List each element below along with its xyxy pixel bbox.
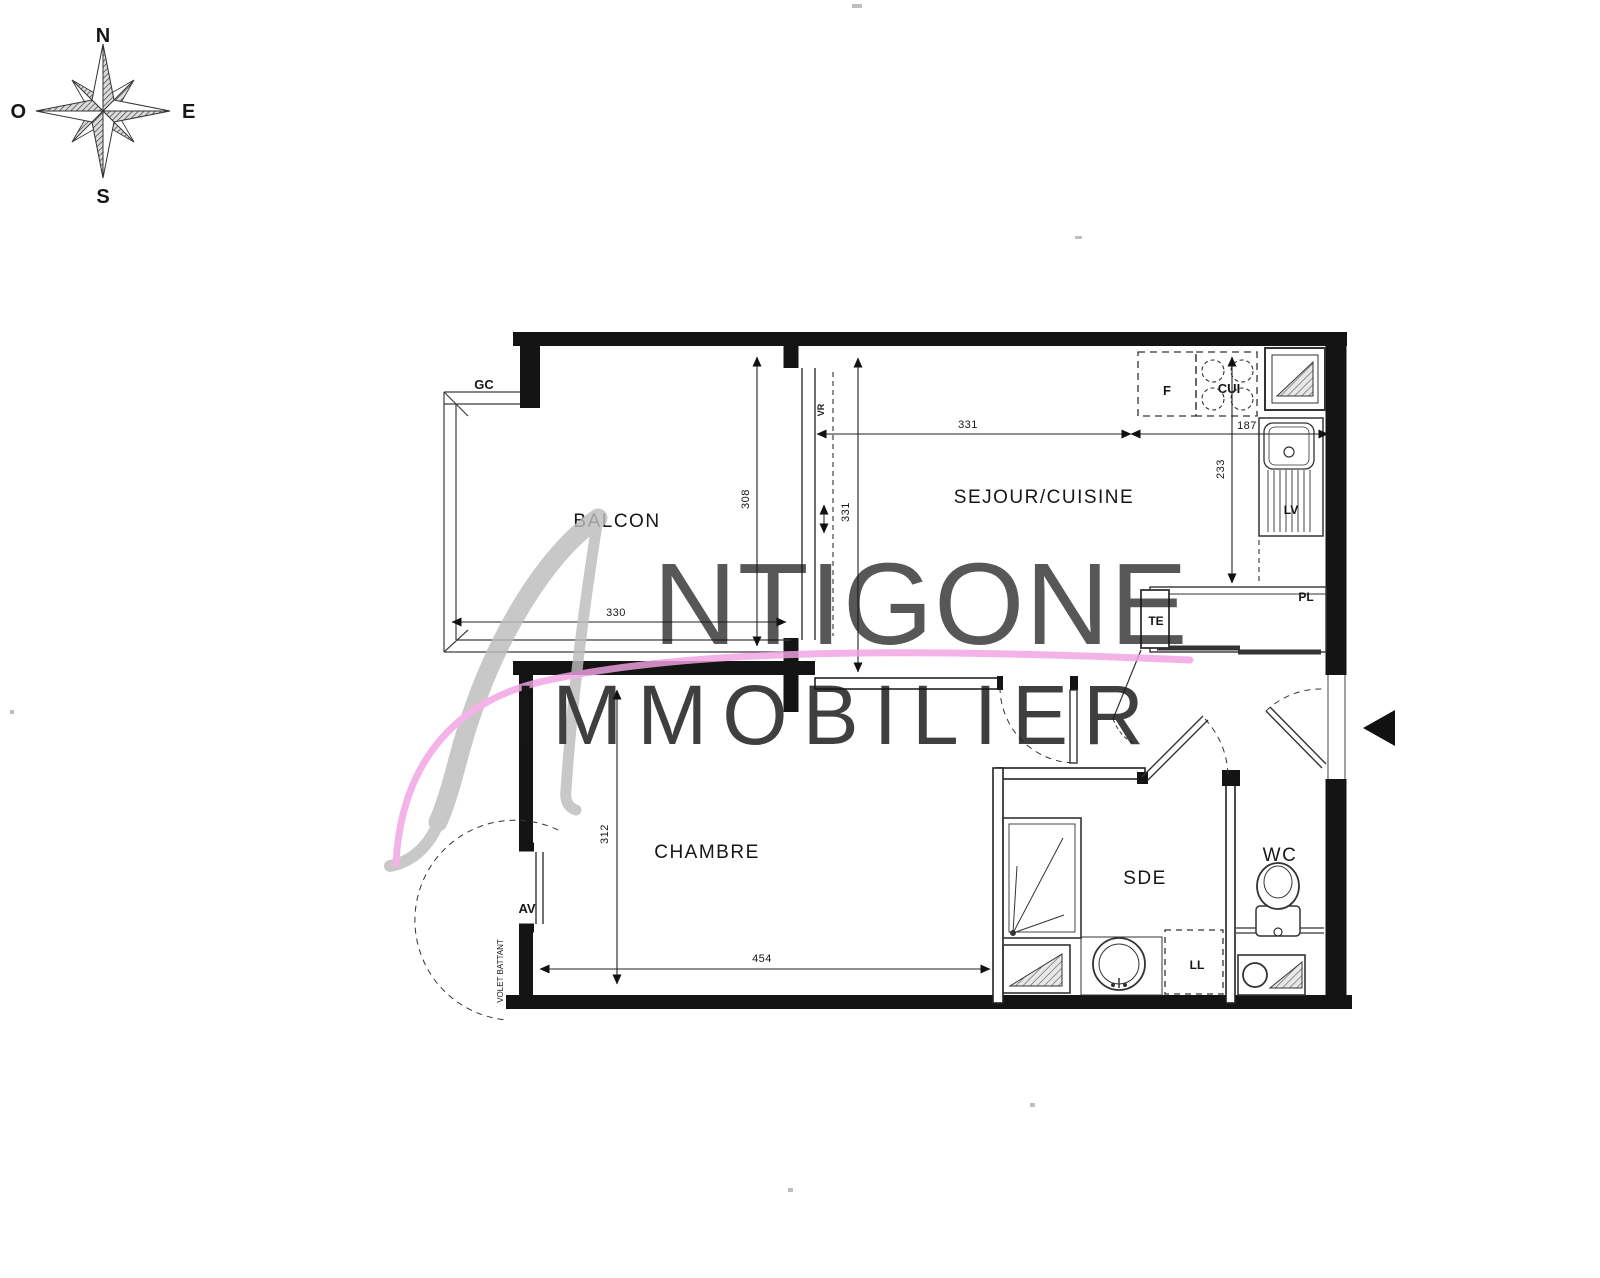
entrance-threshold: [1328, 675, 1345, 779]
dim-kitchen-width: 187: [1237, 420, 1257, 432]
wc-fixtures: [1236, 863, 1324, 995]
compass-east-label: E: [182, 101, 195, 123]
wc-vent-symbol: [1238, 955, 1305, 995]
toilet-symbol: [1256, 863, 1300, 936]
room-label-shower-room: SDE: [1123, 868, 1167, 889]
tag-roller-shutter: VR: [816, 403, 826, 416]
watermark-tagline-text: IMMOBILIER: [514, 668, 1159, 762]
dim-balcony-depth: 308: [740, 489, 752, 509]
room-label-wc: WC: [1263, 845, 1298, 866]
tag-fridge: F: [1163, 383, 1171, 398]
compass-north-label: N: [96, 25, 110, 47]
room-label-bedroom: CHAMBRE: [654, 842, 760, 863]
dim-living-depth: 331: [840, 502, 852, 522]
dim-bedroom-width: 454: [752, 953, 772, 965]
vent-grille-symbol: [1003, 945, 1070, 993]
dim-living-width: 331: [958, 419, 978, 431]
compass-south-label: S: [96, 186, 109, 208]
tag-window: AV: [518, 901, 535, 916]
tag-washing-machine: LL: [1190, 958, 1205, 972]
kitchen-sink-symbol: [1259, 418, 1323, 536]
room-label-living-kitchen: SEJOUR/CUISINE: [954, 487, 1134, 508]
compass-rose-icon: N E S O: [10, 25, 195, 208]
tag-railing: GC: [474, 377, 494, 392]
shower-symbol: [1003, 818, 1081, 938]
compass-west-label: O: [10, 101, 26, 123]
entrance-arrow-icon: [1363, 710, 1395, 746]
watermark-brand-text: NTIGONE: [653, 539, 1188, 669]
entrance-door: [1266, 689, 1326, 768]
tag-cooktop: CUI: [1218, 381, 1240, 396]
dim-balcony-width: 330: [606, 607, 626, 619]
bedroom-window: [415, 820, 558, 1020]
tag-swing-shutter: VOLET BATTANT: [496, 939, 505, 1003]
dim-bedroom-depth: 312: [599, 824, 611, 844]
kitchen-vent-symbol: [1265, 348, 1325, 410]
floor-plan-page: N E S O: [0, 0, 1600, 1278]
washbasin-symbol: [1081, 937, 1162, 995]
floor-plan-canvas: N E S O: [0, 0, 1600, 1278]
tag-closet: PL: [1298, 590, 1313, 604]
watermark-logo: NTIGONE IMMOBILIER: [390, 518, 1190, 866]
tag-dishwasher: LV: [1284, 503, 1298, 517]
dim-kitchen-depth: 233: [1215, 459, 1227, 479]
